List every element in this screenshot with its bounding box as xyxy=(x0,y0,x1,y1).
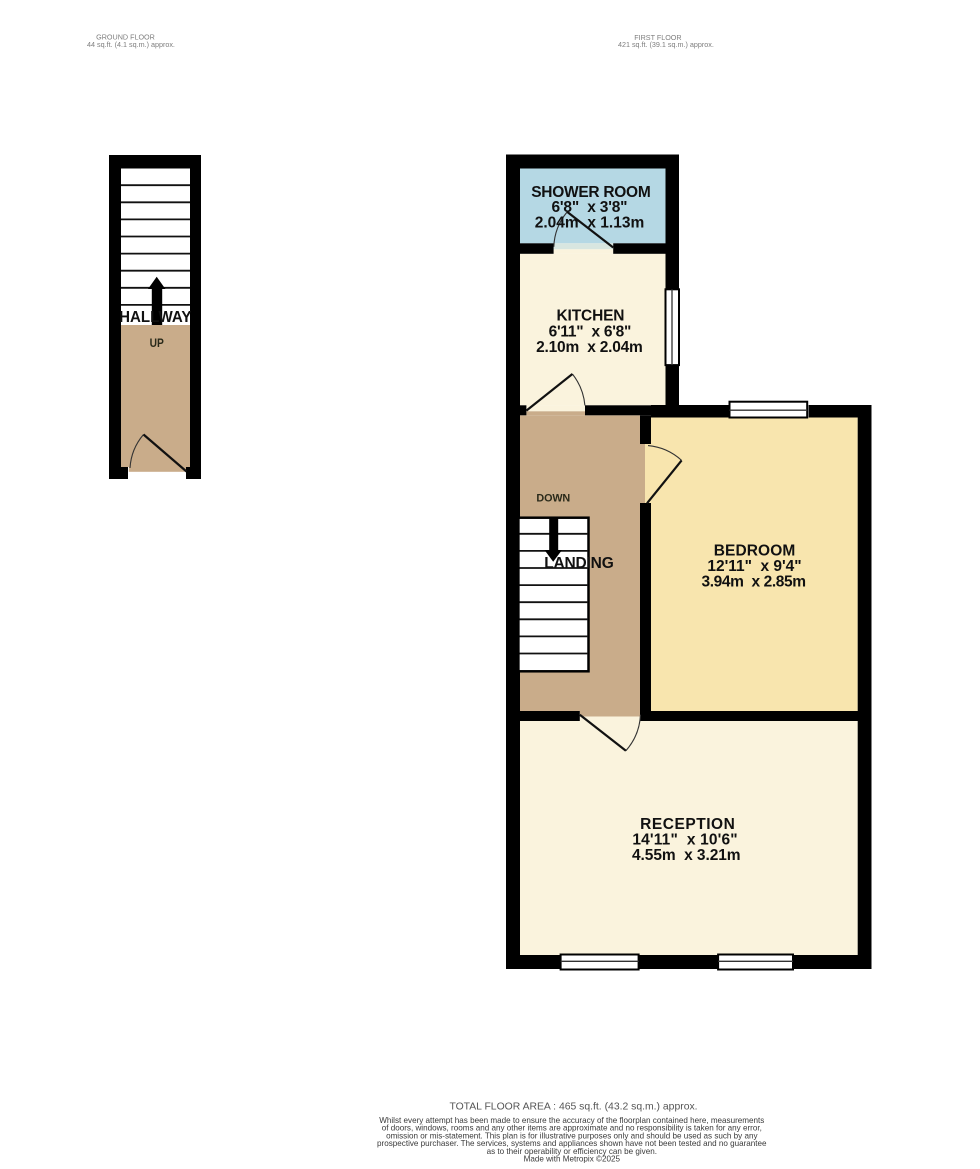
svg-text:RECEPTION: RECEPTION xyxy=(640,816,735,833)
svg-text:2.04m x 1.13m: 2.04m x 1.13m xyxy=(535,214,645,231)
svg-text:UP: UP xyxy=(150,338,164,350)
svg-text:4.55m x 3.21m: 4.55m x 3.21m xyxy=(632,847,741,864)
svg-text:3.94m x 2.85m: 3.94m x 2.85m xyxy=(702,573,807,590)
svg-text:HALLWAY: HALLWAY xyxy=(119,309,192,326)
svg-text:6'11" x 6'8": 6'11" x 6'8" xyxy=(549,323,632,340)
svg-text:BEDROOM: BEDROOM xyxy=(714,542,796,559)
svg-text:DOWN: DOWN xyxy=(536,493,570,505)
svg-text:TOTAL FLOOR AREA : 465 sq.ft.: TOTAL FLOOR AREA : 465 sq.ft. (43.2 sq.m… xyxy=(449,1101,697,1112)
svg-text:12'11" x 9'4": 12'11" x 9'4" xyxy=(707,558,801,575)
svg-text:14'11" x 10'6": 14'11" x 10'6" xyxy=(632,831,737,848)
svg-text:LANDING: LANDING xyxy=(544,555,614,572)
svg-text:44 sq.ft. (4.1 sq.m.) approx.: 44 sq.ft. (4.1 sq.m.) approx. xyxy=(87,40,175,49)
svg-text:421 sq.ft. (39.1 sq.m.) approx: 421 sq.ft. (39.1 sq.m.) approx. xyxy=(618,40,714,49)
svg-text:2.10m x 2.04m: 2.10m x 2.04m xyxy=(536,339,643,356)
svg-text:Made with Metropix ©2025: Made with Metropix ©2025 xyxy=(524,1155,621,1164)
svg-text:KITCHEN: KITCHEN xyxy=(557,308,625,325)
